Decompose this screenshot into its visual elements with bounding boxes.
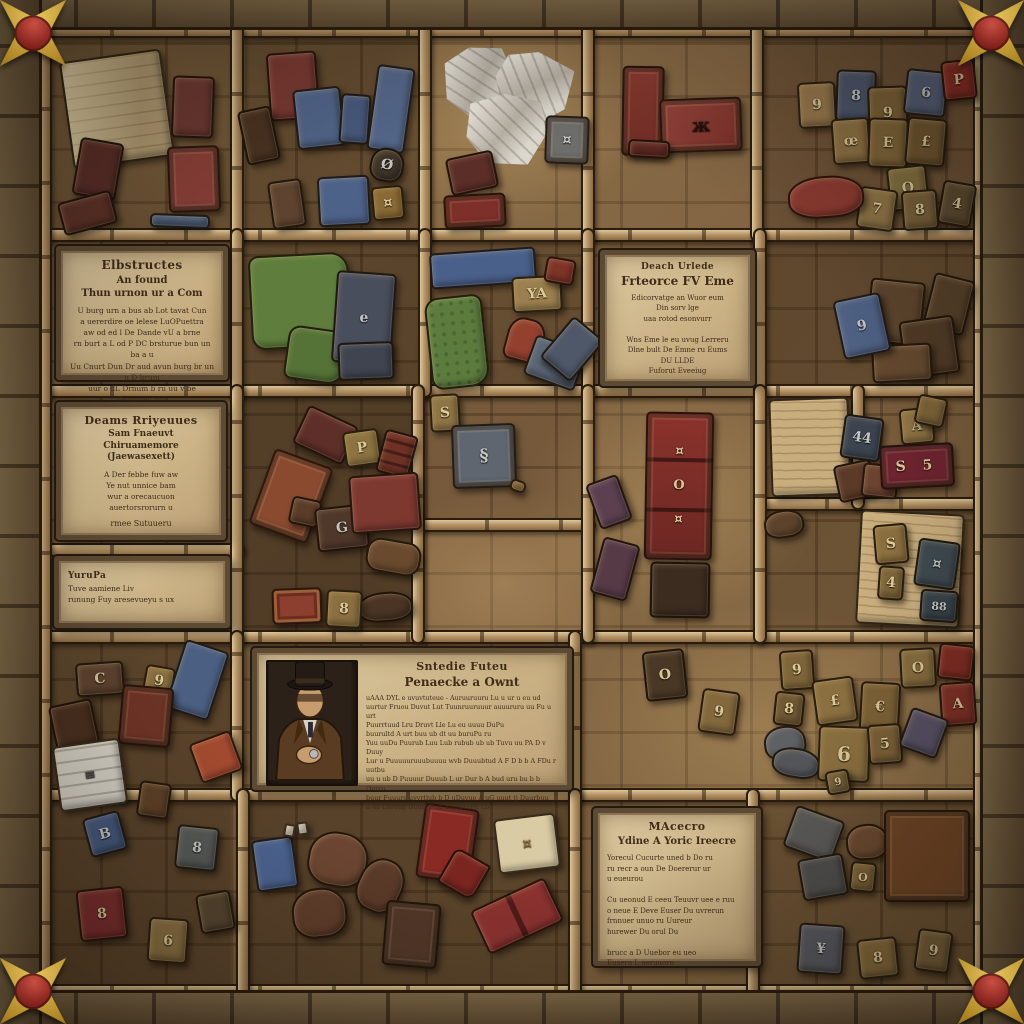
tile-glyph: E xyxy=(882,135,893,151)
tile-glyph: 44 xyxy=(851,429,873,448)
plaque-glyph: § xyxy=(479,446,489,466)
gray-ornate-plaque[interactable]: § xyxy=(451,423,517,489)
plaque-subtitle: Penaecke a Ownt xyxy=(366,675,558,691)
rune-tile[interactable]: O xyxy=(849,861,878,894)
card[interactable]: ¤ xyxy=(913,537,961,590)
card[interactable]: 88 xyxy=(919,589,959,624)
tile-glyph: 6 xyxy=(920,85,931,102)
rune-tile[interactable]: œ xyxy=(830,117,871,166)
satchel[interactable] xyxy=(381,900,441,970)
stone-border-left xyxy=(0,0,42,1024)
plaque-text-column: Sntedie Futeu Penaecke a Ownt uAAA DYL e… xyxy=(366,660,558,778)
tile-glyph: ¥ xyxy=(816,941,827,958)
rune-tile[interactable]: 4 xyxy=(877,565,905,601)
rune-tile[interactable]: £ xyxy=(904,116,948,167)
tile-glyph: S xyxy=(885,536,896,553)
book-glyph: 9 xyxy=(856,317,869,335)
plaque-title: Sntedie Futeu xyxy=(366,660,558,673)
plaque-subtitle: Ydine A Yoric Ireecre xyxy=(607,835,747,848)
grid-beam xyxy=(230,384,244,644)
red-cabinet[interactable]: ¤ O ¤ xyxy=(644,411,715,560)
grid-beam xyxy=(418,24,432,242)
grid-beam xyxy=(568,788,582,997)
card-glyph: 88 xyxy=(931,599,947,613)
card-glyph: ¤ xyxy=(931,555,942,572)
plaque-title: MAcecro xyxy=(607,820,747,833)
plaque-detective: Sntedie Futeu Penaecke a Ownt uAAA DYL e… xyxy=(252,648,572,790)
plaque-body: Yorecul Cucurte uned b Do ru ru recr a o… xyxy=(607,853,747,969)
book[interactable] xyxy=(136,780,173,820)
grid-beam xyxy=(413,518,596,532)
plaque-body: U burg urn a bus ab Lot tavat Cun a uere… xyxy=(70,305,214,405)
grid-beam xyxy=(230,630,244,802)
plaque-body: Tuve aamiene Liv runung Fuy aresevueyu s… xyxy=(68,583,216,605)
grid-beam xyxy=(750,24,764,242)
rune-tile[interactable]: £ xyxy=(811,675,859,726)
rune-tile[interactable]: O xyxy=(899,647,937,689)
rune-tile[interactable]: 8 xyxy=(75,886,128,943)
grid-beam xyxy=(581,228,595,398)
rune-tile[interactable]: 9 xyxy=(697,688,741,737)
book-glyph: S 5 xyxy=(895,457,939,475)
grid-beam xyxy=(38,543,245,557)
drawer[interactable] xyxy=(628,139,671,159)
tile-glyph: O xyxy=(658,666,672,683)
card[interactable] xyxy=(317,175,372,228)
book[interactable] xyxy=(171,75,215,138)
plaque-title: Deams Rriyeuues xyxy=(70,414,212,427)
plaque-subtitle: Frteorce FV Eme xyxy=(614,274,741,290)
tile-glyph: 8 xyxy=(191,840,202,857)
tile-glyph: 8 xyxy=(96,906,107,923)
tile-glyph: 6 xyxy=(163,932,174,949)
tile-glyph: 9 xyxy=(792,662,803,679)
book[interactable]: ¤ xyxy=(544,115,590,165)
tile-glyph: £ xyxy=(920,134,931,151)
book[interactable]: S 5 xyxy=(879,442,955,490)
tile-glyph: YA xyxy=(527,285,548,302)
tile-glyph: 5 xyxy=(880,736,891,753)
tile-glyph: 8 xyxy=(783,701,794,718)
grid-beam xyxy=(38,228,986,242)
tile-glyph: 7 xyxy=(871,200,883,217)
rune-tile[interactable]: 8 xyxy=(856,936,900,980)
book[interactable] xyxy=(348,472,422,535)
tile-glyph: € xyxy=(875,699,886,715)
tile-glyph: C xyxy=(94,671,106,688)
tile-glyph: 9 xyxy=(713,703,725,720)
tile-glyph: 8 xyxy=(339,601,350,617)
pouch-glyph: ¤ xyxy=(383,195,393,212)
card[interactable] xyxy=(195,889,236,934)
plaque-top-left: Elbstructes An found Thun urnon ur a Com… xyxy=(56,246,228,380)
papers-stack[interactable]: ≡ xyxy=(52,738,129,813)
tile-glyph: S xyxy=(440,405,451,422)
tile-glyph: £ xyxy=(829,692,841,709)
tile-glyph: 9 xyxy=(928,942,940,959)
plaque-subtitle: An found Thun urnon ur a Com xyxy=(70,274,214,300)
rune-tile[interactable]: 5 xyxy=(867,723,904,765)
card[interactable] xyxy=(337,341,394,381)
rune-tile[interactable]: E xyxy=(867,117,909,168)
cream-book[interactable]: ¤ xyxy=(493,812,561,874)
plaque-title: Elbstructes xyxy=(70,258,214,272)
book[interactable] xyxy=(251,835,300,892)
cabinet-glyphs: ¤ O ¤ xyxy=(672,435,685,537)
detective-portrait xyxy=(266,660,358,786)
rune-tile[interactable]: 8 xyxy=(174,824,220,872)
rune-tile[interactable]: 8 xyxy=(772,691,805,728)
rune-tile[interactable]: ¥ xyxy=(796,922,845,975)
tile-glyph: 8 xyxy=(851,88,861,104)
grid-beam xyxy=(581,384,595,644)
plaque-small-left: YuruPa Tuve aamiene Liv runung Fuy arese… xyxy=(54,556,230,628)
tile-glyph: 4 xyxy=(886,575,897,592)
rune-tile[interactable]: S xyxy=(872,523,909,566)
tile-glyph: G xyxy=(335,519,349,536)
stone-border-bottom xyxy=(0,990,1024,1024)
book[interactable] xyxy=(267,178,307,230)
stone-border-top xyxy=(0,0,1024,30)
plaque-subtitle: Sam Fnaeuvt Chiruamemore (Jaewasexett) xyxy=(70,429,212,464)
tile-glyph: P xyxy=(356,439,369,456)
grid-beam xyxy=(230,228,244,398)
card[interactable] xyxy=(150,213,210,229)
tile-glyph: P xyxy=(953,71,965,88)
dice[interactable] xyxy=(283,823,296,838)
grid-beam xyxy=(753,228,767,398)
tile-glyph: A xyxy=(952,696,964,713)
grid-beam xyxy=(38,630,986,644)
book-glyph: ¤ xyxy=(522,835,533,852)
plaque-body: uAAA DYL e uvuvtuteue - Auruuruuru Lu u … xyxy=(366,694,558,812)
book-glyph: e xyxy=(359,310,369,327)
pouch[interactable]: ¤ xyxy=(371,185,406,222)
papers-glyph: ≡ xyxy=(83,766,97,783)
rune-tile[interactable]: 9 xyxy=(824,768,852,796)
rune-tile[interactable]: 8 xyxy=(901,189,940,231)
plaque-title: Deach Urlede xyxy=(614,262,741,272)
grid-beam xyxy=(236,788,250,997)
game-board-scene: Ø ¤ ¤ ж 9 8 9 6 P œ E £ O 7 8 4 e YA 9 P… xyxy=(0,0,1024,1024)
ornate-plaque[interactable] xyxy=(884,810,970,902)
card[interactable] xyxy=(338,93,371,145)
grid-beam xyxy=(753,384,767,644)
tile-glyph: 9 xyxy=(812,97,823,113)
plaque-dreams: Deams Rriyeuues Sam Fnaeuvt Chiruamemore… xyxy=(56,402,226,540)
dice[interactable] xyxy=(296,821,309,835)
rune-tile[interactable]: O xyxy=(642,648,689,702)
tile-glyph: 6 xyxy=(837,742,852,766)
book-glyph: ¤ xyxy=(562,132,571,148)
detective-portrait-art xyxy=(268,662,352,780)
carpet-tile[interactable] xyxy=(271,587,322,625)
plaque-body: Edicorvatge an Wuor eum Din sorv lge uaa… xyxy=(614,293,741,377)
pouch-glyph: Ø xyxy=(380,156,395,174)
rune-tile[interactable] xyxy=(913,393,949,429)
rune-tile[interactable] xyxy=(936,642,976,682)
stone-border-right xyxy=(980,0,1024,1024)
shelf[interactable] xyxy=(650,561,711,618)
spider-panel[interactable]: ж xyxy=(659,97,743,154)
plaque-footer: rmee Sutuueru xyxy=(70,519,212,528)
card[interactable] xyxy=(543,256,577,287)
tile-glyph: O xyxy=(858,870,869,884)
book[interactable] xyxy=(797,852,850,901)
rune-tile[interactable]: 9 xyxy=(779,649,816,691)
plaque-magic: MAcecro Ydine A Yoric Ireecre Yorecul Cu… xyxy=(593,808,761,966)
card[interactable] xyxy=(292,86,346,151)
book[interactable] xyxy=(167,145,221,213)
tile-glyph: B xyxy=(97,825,113,844)
tile-glyph: 8 xyxy=(915,202,926,219)
plaque-title: YuruPa xyxy=(68,571,216,581)
ornate-book[interactable] xyxy=(117,684,174,748)
spider-glyph: ж xyxy=(692,114,711,136)
tile-glyph: 4 xyxy=(951,195,963,212)
rune-tile[interactable]: C xyxy=(75,660,125,697)
green-pouch[interactable] xyxy=(423,293,490,391)
book[interactable] xyxy=(443,192,507,229)
plaque-body: A Der febbe fuw aw Ye nut unnice bam wur… xyxy=(70,469,212,513)
rune-tile[interactable]: 6 xyxy=(146,917,189,965)
rune-tile[interactable]: 8 xyxy=(325,589,363,629)
plaque-death: Deach Urlede Frteorce FV Eme Edicorvatge… xyxy=(600,250,755,386)
rune-tile[interactable]: 44 xyxy=(839,413,885,462)
tile-glyph: œ xyxy=(843,133,858,150)
tile-glyph: 8 xyxy=(872,950,883,967)
tile-glyph: 9 xyxy=(834,776,843,788)
tile-glyph: O xyxy=(911,660,924,677)
